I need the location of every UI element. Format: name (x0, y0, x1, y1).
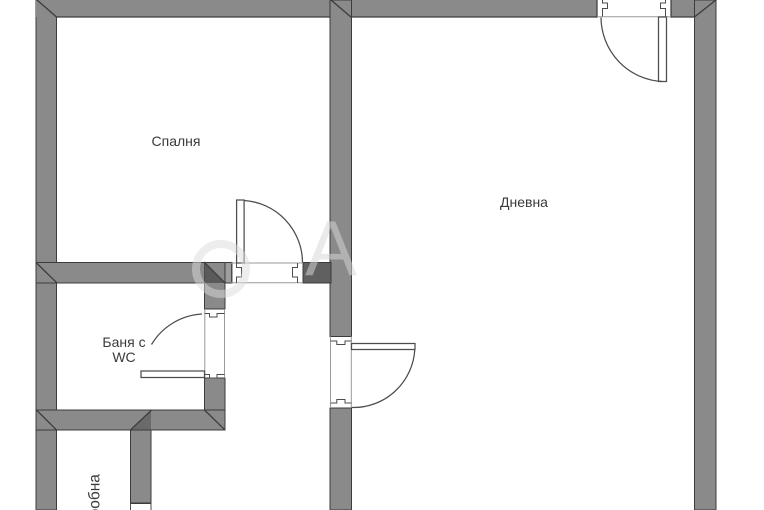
svg-text:Дневна: Дневна (500, 194, 548, 210)
svg-text:WC: WC (112, 349, 135, 365)
svg-text:А: А (305, 204, 357, 292)
svg-text:Баня с: Баня с (102, 334, 145, 350)
svg-text:Гардеробна: Гардеробна (87, 474, 104, 510)
svg-text:Спалня: Спалня (152, 133, 201, 149)
